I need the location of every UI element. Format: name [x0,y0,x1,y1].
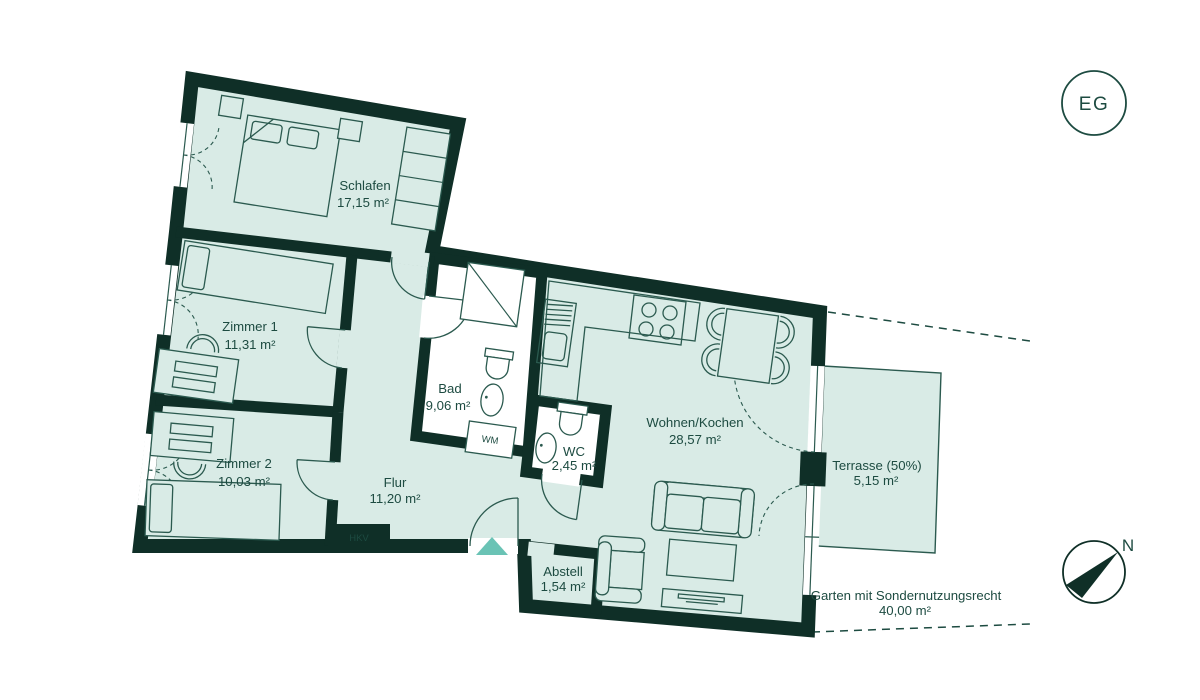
wall-pier-terrace [799,452,826,487]
nightstand [219,95,244,118]
label-bad-area: 9,06 m² [426,398,471,413]
label-wohnen-name: Wohnen/Kochen [646,415,743,430]
label-zimmer1-name: Zimmer 1 [222,319,278,334]
washing-machine: WM [465,421,516,458]
label-schlafen-name: Schlafen [339,178,390,193]
floor-badge: EG [1062,71,1126,135]
nightstand [338,118,363,141]
label-zimmer2-name: Zimmer 2 [216,456,272,471]
pillow [287,127,319,149]
hkv-cabinet: HKV [328,524,390,549]
label-flur-area: 11,20 m² [369,491,421,506]
north-arrow-icon [1066,552,1118,598]
label-abstell-name: Abstell [543,564,583,579]
compass: N [1063,536,1134,603]
sofa-cushion [664,494,704,531]
label-bad-name: Bad [438,381,461,396]
label-wc-area: 2,45 m² [552,458,597,473]
armchair-seat [609,550,645,589]
sofa-cushion [701,497,741,534]
armchair [595,535,645,603]
garden-dashed-line-bottom [812,624,1030,632]
north-label: N [1122,536,1134,555]
floor-plan-canvas: HKV [0,0,1200,700]
sofa [651,481,755,539]
label-zimmer1-area: 11,31 m² [224,337,276,352]
coffee-table [667,539,737,581]
label-zimmer2-area: 10,03 m² [218,474,271,489]
label-terrasse-name: Terrasse (50%) [832,458,921,473]
shower [460,262,524,326]
floor-plan-page: HKV [0,0,1200,700]
double-bed [234,115,341,217]
dining-table [718,309,779,384]
label-flur-name: Flur [384,475,407,490]
armchair-back [595,541,612,595]
hkv-label: HKV [349,533,369,544]
label-terrasse-area: 5,15 m² [854,473,899,488]
pillow [149,484,173,533]
label-wc-name: WC [563,444,585,459]
label-garten-area: 40,00 m² [879,603,932,618]
garden-dashed-line-top [828,312,1030,341]
doorway-zimmer2 [326,462,342,501]
floor-badge-label: EG [1079,94,1109,115]
label-garten-name: Garten mit Sondernutzungsrecht [811,588,1002,603]
doorway-abstell [527,542,554,559]
label-abstell-area: 1,54 m² [541,579,586,594]
label-schlafen-area: 17,15 m² [337,195,390,210]
label-wohnen-area: 28,57 m² [669,432,722,447]
washing-machine-label: WM [481,434,499,447]
